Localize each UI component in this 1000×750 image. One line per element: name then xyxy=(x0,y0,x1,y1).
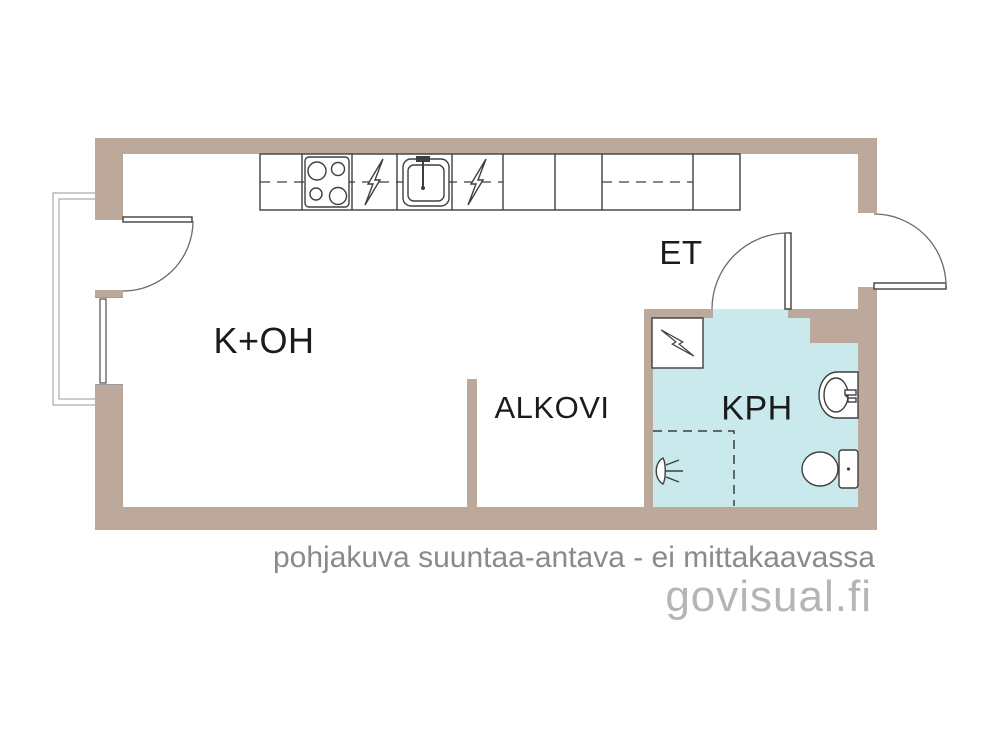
wall-right-upper xyxy=(858,138,877,213)
wall-bathroom-top-left xyxy=(644,309,713,318)
faucet-icon xyxy=(416,156,430,162)
washbasin-icon xyxy=(819,372,858,418)
electrical-cabinet xyxy=(652,318,703,368)
room-label-entry: ET xyxy=(659,234,702,272)
faucet-icon xyxy=(845,390,856,395)
floor-plan-page: K+OH ALKOVI ET KPH pohjakuva suuntaa-ant… xyxy=(0,0,1000,750)
door-swing-arc xyxy=(712,233,788,309)
balcony-railing xyxy=(53,193,95,405)
window-icon xyxy=(95,298,123,385)
wall-top xyxy=(95,138,877,154)
sink-icon xyxy=(403,156,449,206)
stove-icon xyxy=(305,157,349,207)
wall-alcove-partition xyxy=(467,379,477,507)
counter-dividers xyxy=(302,154,693,210)
disclaimer-caption: pohjakuva suuntaa-antava - ei mittakaava… xyxy=(273,541,875,575)
door-swing-arc xyxy=(874,214,946,286)
toilet-icon xyxy=(802,450,858,488)
door-swing-arc xyxy=(123,221,193,291)
wall-left-upper xyxy=(95,138,123,220)
wall-bathroom-duct xyxy=(810,309,858,343)
entry-door xyxy=(874,214,946,289)
balcony-door xyxy=(123,217,193,291)
wall-right-lower xyxy=(858,287,877,530)
floor-plan-canvas xyxy=(0,0,1000,750)
room-label-kitchen-living: K+OH xyxy=(213,320,314,362)
door-panel xyxy=(785,233,791,309)
wall-bottom xyxy=(95,507,877,530)
wall-left-mid xyxy=(95,290,123,297)
brand-logo: govisual.fi xyxy=(665,572,872,622)
door-panel xyxy=(874,283,946,289)
door-panel xyxy=(123,217,192,222)
room-label-alcove: ALKOVI xyxy=(495,390,610,426)
room-label-bathroom: KPH xyxy=(721,390,792,429)
bathroom-door xyxy=(712,233,791,309)
